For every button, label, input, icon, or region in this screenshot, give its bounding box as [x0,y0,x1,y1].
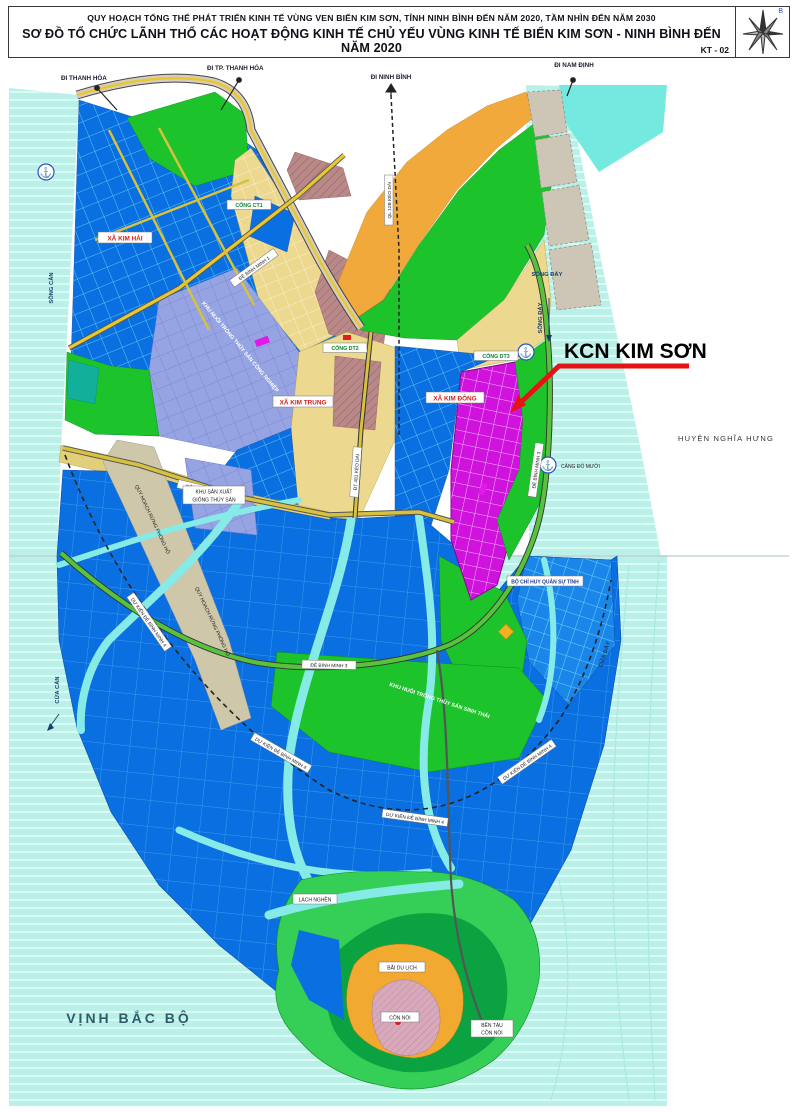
compass-box: B [736,6,790,58]
label-huyen-nghia-hung: HUYỆN NGHĨA HƯNG [678,434,774,443]
label-xa-kim-hai: XÃ KIM HẢI [98,232,152,243]
svg-text:QL 12B KÉO DÀI: QL 12B KÉO DÀI [386,182,393,219]
svg-text:XÃ KIM TRUNG: XÃ KIM TRUNG [280,398,327,407]
svg-text:CỐNG CT1: CỐNG CT1 [235,202,262,209]
compass-rose-icon [736,6,790,58]
svg-text:XÃ KIM ĐÔNG: XÃ KIM ĐÔNG [433,394,476,403]
planning-map: ⚓ ⚓ ⚓ KCN KIM SƠN ĐI THANH HÓA ĐI TP. TH… [8,58,790,1106]
anchor-icon: ⚓ [518,344,534,360]
label-ben-tau: BẾN TÀU CỒN NỔI [471,1020,513,1037]
label-vinh-bac-bo: VỊNH BẮC BỘ [66,1009,192,1026]
dir-thanh-hoa: ĐI THANH HÓA [61,73,107,82]
svg-text:⚓: ⚓ [40,166,52,179]
label-cong-dt3: CỐNG DT3 [474,351,518,361]
label-song-day: SÔNG ĐÁY [532,270,563,278]
anchor-icon: ⚓ [38,164,54,180]
svg-text:⚓: ⚓ [520,346,532,359]
sheet-code: KT - 02 [701,45,729,55]
svg-text:CỐNG DT3: CỐNG DT3 [482,353,509,360]
label-khu-san-xuat: KHU SẢN XUẤT GIỐNG THỦY SẢN [183,486,245,504]
svg-text:CỒN NỔI: CỒN NỔI [389,1015,410,1022]
svg-text:BỘ CHỈ HUY QUÂN SỰ TỈNH: BỘ CHỈ HUY QUÂN SỰ TỈNH [511,578,579,586]
svg-text:XÃ KIM HẢI: XÃ KIM HẢI [107,234,142,243]
label-cong-ct1: CỐNG CT1 [227,200,271,210]
svg-text:CỒN NỔI: CỒN NỔI [481,1030,502,1037]
label-song-can: SÔNG CÀN [47,272,55,303]
svg-text:KHU SẢN XUẤT: KHU SẢN XUẤT [196,489,233,496]
dir-tp-thanh-hoa: ĐI TP. THANH HÓA [207,63,264,72]
label-cong-dt2: CỐNG DT2 [323,343,367,353]
svg-text:CỬA CÀN: CỬA CÀN [54,676,61,703]
label-con-noi: CỒN NỔI [381,1012,419,1022]
dir-nam-dinh: ĐI NAM ĐỊNH [554,62,594,69]
svg-text:GIỐNG THỦY SẢN: GIỐNG THỦY SẢN [192,497,236,504]
svg-text:SÔNG ĐÁY: SÔNG ĐÁY [536,302,544,333]
kcn-callout-label: KCN KIM SƠN [564,340,707,363]
label-xa-kim-trung: XÃ KIM TRUNG [273,396,333,407]
svg-text:⚓: ⚓ [542,459,554,472]
map-title-line1: QUY HOẠCH TỔNG THỂ PHÁT TRIỂN KINH TẾ VÙ… [8,13,735,23]
label-bo-chi-huy: BỘ CHỈ HUY QUÂN SỰ TỈNH [507,576,583,586]
label-cang-do-muoi: CẢNG ĐÒ MƯỜI [561,463,600,470]
label-lach-nghen: LẠCH NGHỀN [293,894,337,904]
label-de-bm3: ĐÊ BÌNH MINH 3 [302,660,356,669]
map-title-line2: SƠ ĐỒ TỔ CHỨC LÃNH THỔ CÁC HOẠT ĐỘNG KIN… [8,27,735,55]
label-bai-du-lich: BÃI DU LỊCH [379,962,425,972]
label-ql12b: QL 12B KÉO DÀI [385,175,394,225]
anchor-icon: ⚓ [540,457,556,473]
svg-text:LẠCH NGHỀN: LẠCH NGHỀN [299,897,332,904]
svg-text:CỐNG DT2: CỐNG DT2 [331,345,358,352]
svg-text:BẾN TÀU: BẾN TÀU [481,1022,503,1029]
dir-ninh-binh: ĐI NINH BÌNH [371,72,412,81]
label-xa-kim-dong: XÃ KIM ĐÔNG [426,392,484,403]
title-block: QUY HOẠCH TỔNG THỂ PHÁT TRIỂN KINH TẾ VÙ… [8,6,736,58]
svg-text:BÃI DU LỊCH: BÃI DU LỊCH [387,965,417,972]
